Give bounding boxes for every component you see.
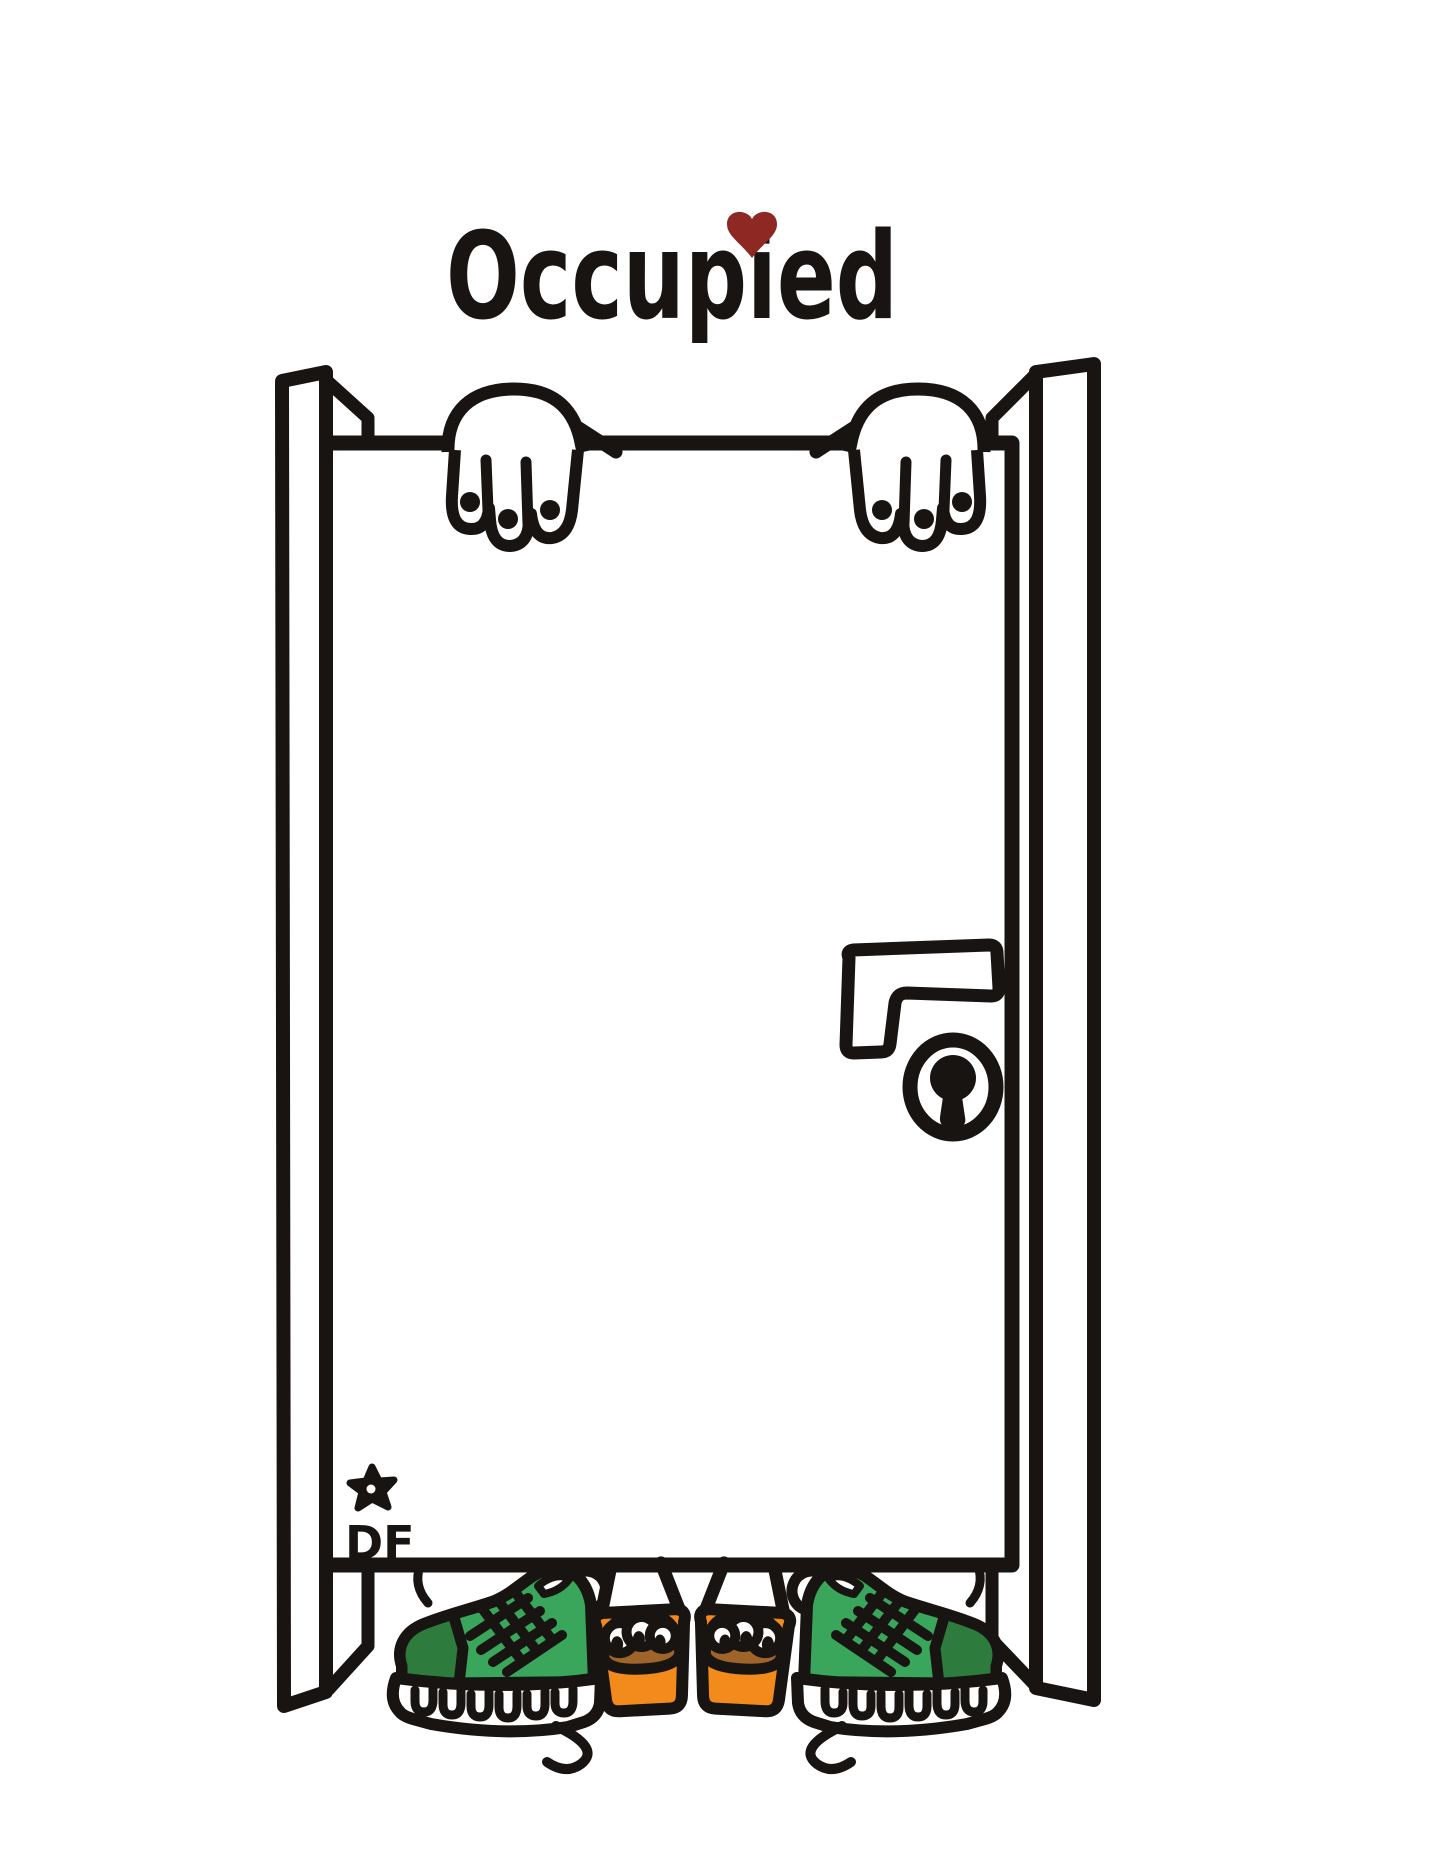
partition-edge-bottom-left bbox=[328, 1563, 368, 1690]
star-center-dot bbox=[367, 1485, 376, 1494]
left-green-sneaker bbox=[393, 1565, 612, 1769]
illustration-occupied-stall: Occupied DF bbox=[0, 0, 1445, 1870]
page-title: Occupied bbox=[446, 208, 898, 347]
keyhole-icon bbox=[910, 1040, 996, 1134]
signature-initials: DF bbox=[345, 1516, 415, 1570]
stall-door-panel bbox=[320, 443, 1012, 1565]
right-post bbox=[1036, 364, 1094, 1700]
left-orange-sandal bbox=[592, 1562, 690, 1713]
right-green-sneaker bbox=[786, 1565, 1005, 1769]
occupied-illustration-canvas: Occupied DF bbox=[0, 0, 1445, 1870]
right-orange-sandal bbox=[695, 1562, 793, 1713]
left-post bbox=[282, 372, 326, 1706]
keyhole-stem bbox=[940, 1090, 965, 1127]
